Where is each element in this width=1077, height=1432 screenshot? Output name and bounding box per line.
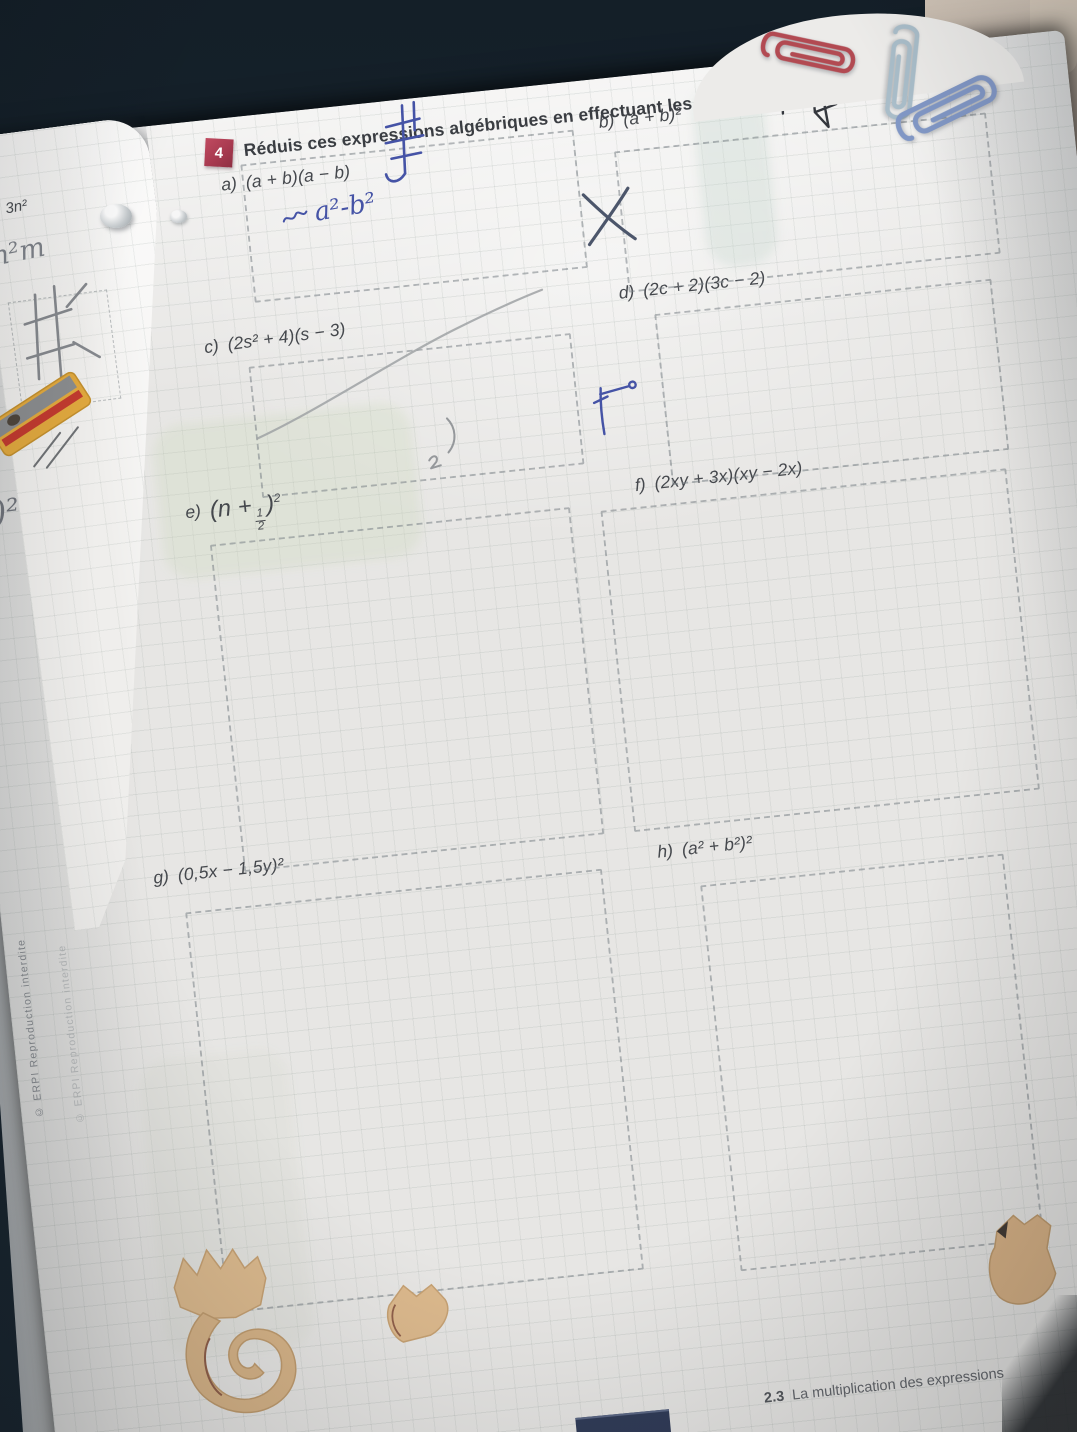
answer-box-h <box>700 854 1044 1272</box>
fraction-denominator: 2 <box>257 521 265 533</box>
pen-flag-doodle <box>588 376 646 441</box>
left-page-printed-fragment: 3n² <box>4 197 28 218</box>
footer-blue-tab <box>575 1409 671 1432</box>
pen-ladder-doodle <box>372 98 439 190</box>
fraction: 12 <box>254 508 267 533</box>
item-label: e) <box>184 501 202 523</box>
exercise-item-h: h)(a² + b²)² <box>656 832 753 863</box>
pencil-small-marks <box>419 412 475 473</box>
pencil-shaving-small <box>377 1274 462 1350</box>
bottom-right-shadow <box>1002 1295 1077 1432</box>
item-label: c) <box>203 335 220 357</box>
exercise-number-badge: 4 <box>204 138 233 167</box>
workbook-right-page: 4 Réduis ces expressions algébriques en … <box>0 30 1077 1432</box>
water-droplet-small <box>170 210 187 223</box>
handwritten-x-mark <box>576 183 642 247</box>
expression-open: (n + <box>208 493 253 523</box>
photo-of-workbook-page: 4 Réduis ces expressions algébriques en … <box>0 0 1077 1432</box>
pencil-shaving-cluster <box>162 1229 314 1432</box>
item-label: h) <box>656 840 674 862</box>
answer-box-e <box>210 507 604 872</box>
item-label: g) <box>152 866 170 888</box>
footer-section-title: La multiplication des expressions <box>791 1365 1004 1403</box>
item-label: a) <box>220 173 238 195</box>
water-droplet <box>100 204 132 228</box>
item-label: f) <box>634 474 647 495</box>
item-expression: (a² + b²)² <box>681 832 753 859</box>
answer-box-f <box>600 468 1040 832</box>
answer-box-d <box>654 279 1009 485</box>
footer-section-number: 2.3 <box>763 1389 785 1407</box>
left-page-pencil-writing: n²m <box>0 232 48 273</box>
page-footer: 2.3La multiplication des expressions <box>763 1365 1004 1406</box>
item-label: b) <box>598 110 616 132</box>
pen-scribble <box>280 205 311 228</box>
